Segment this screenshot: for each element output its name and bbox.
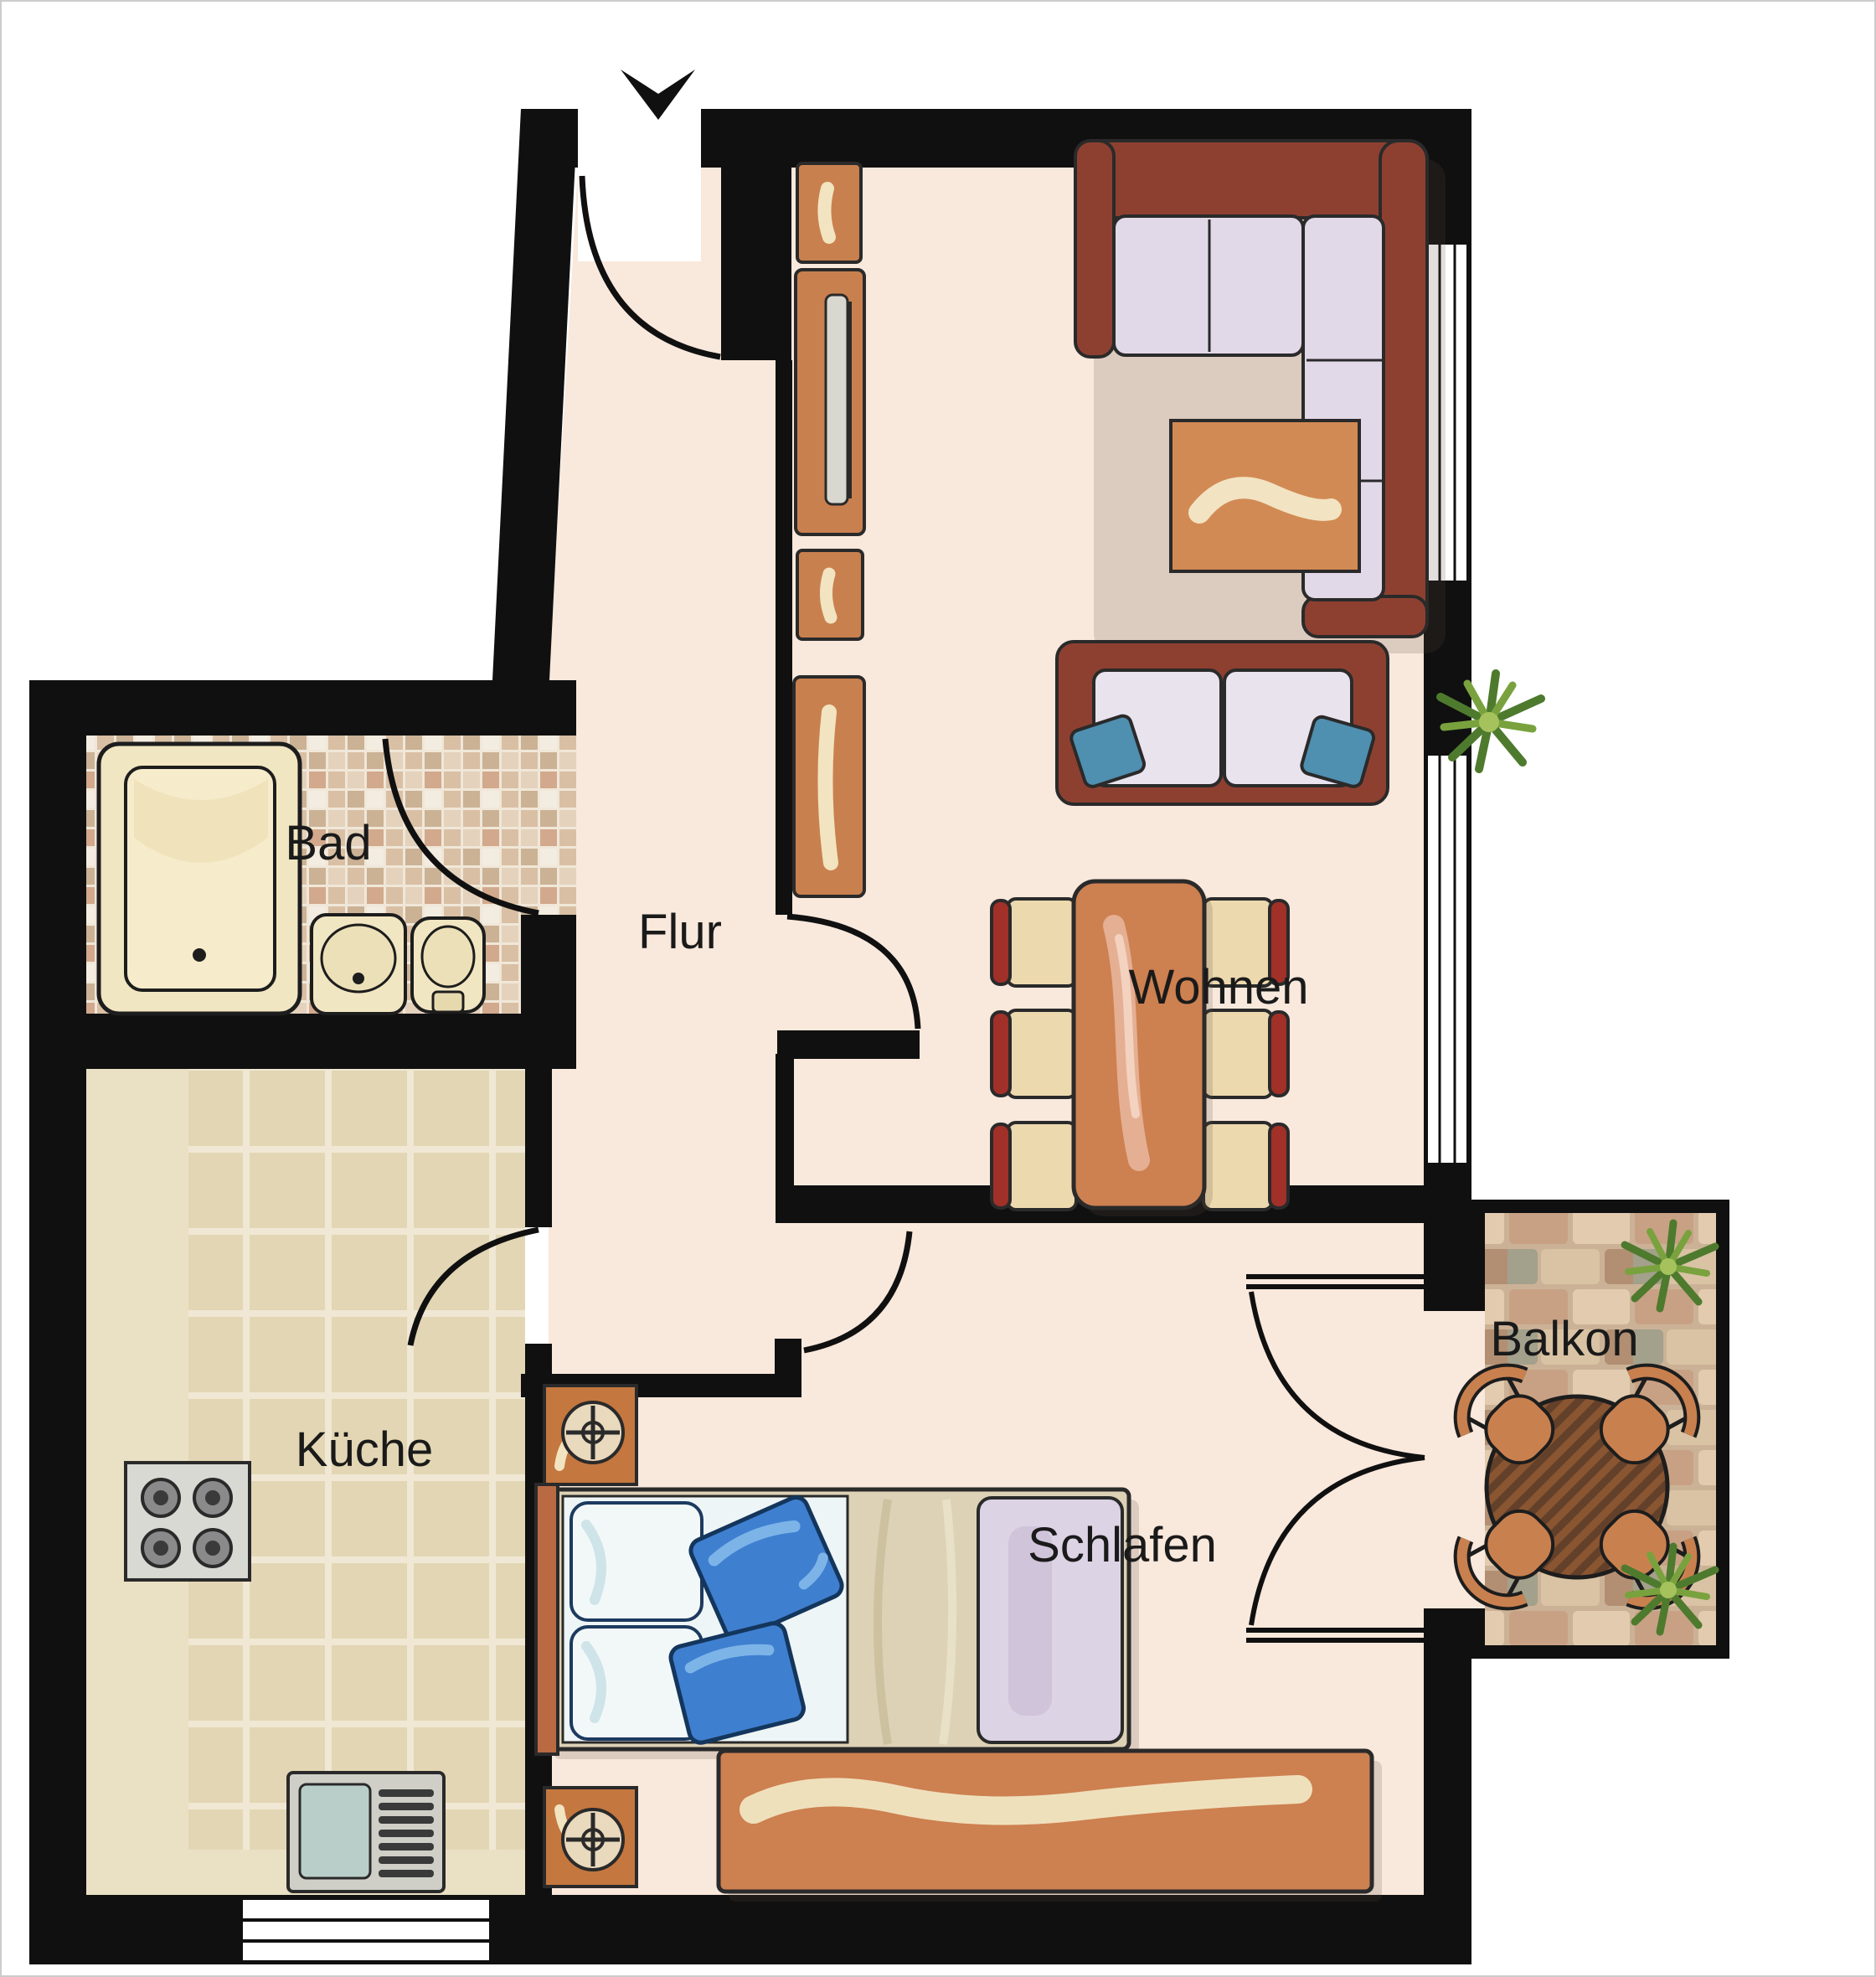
label-balkon: Balkon — [1490, 1312, 1638, 1366]
wall-kitchen-right-upper — [525, 1069, 552, 1227]
wall-flur-wohnen — [776, 360, 792, 915]
wall-right-below-balcony-door — [1424, 1608, 1471, 1964]
window-kitchen — [241, 1898, 491, 1962]
cabinet-row — [794, 163, 864, 896]
label-kueche: Küche — [296, 1422, 433, 1477]
nightstand-bottom — [544, 1788, 636, 1887]
balcony-wall-right — [1716, 1200, 1729, 1659]
balcony-wall-bottom — [1471, 1645, 1729, 1659]
wall-bath-top — [29, 680, 576, 736]
window-wohnen-2 — [1426, 754, 1468, 1164]
stove — [126, 1463, 250, 1580]
dining-chairs-right — [1203, 899, 1288, 1210]
schlafen-door-jamb — [775, 1339, 801, 1397]
sideboard — [719, 1751, 1382, 1902]
floorplan-canvas: Wohnen Flur Bad Küche Schlafen Balkon — [0, 0, 1876, 1977]
wall-flur-wohnen-lower — [776, 1054, 794, 1185]
floorplan-svg: Wohnen Flur Bad Küche Schlafen Balkon — [0, 0, 1876, 1977]
toilet — [412, 918, 484, 1012]
wall-bath-bottom — [29, 1014, 576, 1069]
dining-chairs-left — [992, 899, 1076, 1210]
bathtub — [99, 744, 300, 1014]
nightstand-top — [544, 1386, 636, 1484]
bed-headboard — [536, 1484, 558, 1754]
rug — [1171, 421, 1359, 571]
wall-right-above-balcony-door — [1424, 1223, 1471, 1311]
wall-left — [29, 680, 86, 1964]
balcony-wall-left-lower — [1471, 1608, 1485, 1659]
wohnen-door-leaf — [777, 1030, 920, 1059]
label-wohnen: Wohnen — [1129, 960, 1309, 1014]
label-schlafen: Schlafen — [1028, 1518, 1217, 1572]
balcony-wall-top — [1471, 1200, 1729, 1213]
balcony-wall-left-upper — [1471, 1213, 1485, 1311]
tv — [826, 295, 848, 504]
label-flur: Flur — [638, 905, 722, 959]
small-sofa — [1057, 642, 1388, 804]
wall-entrance-stub — [721, 168, 791, 360]
entrance-recess — [578, 109, 701, 261]
kitchen-sink-unit — [288, 1773, 444, 1892]
dining-set — [992, 881, 1288, 1216]
bath-sink — [312, 915, 405, 1014]
corner-sofa — [1075, 141, 1446, 653]
label-bad: Bad — [285, 816, 371, 870]
